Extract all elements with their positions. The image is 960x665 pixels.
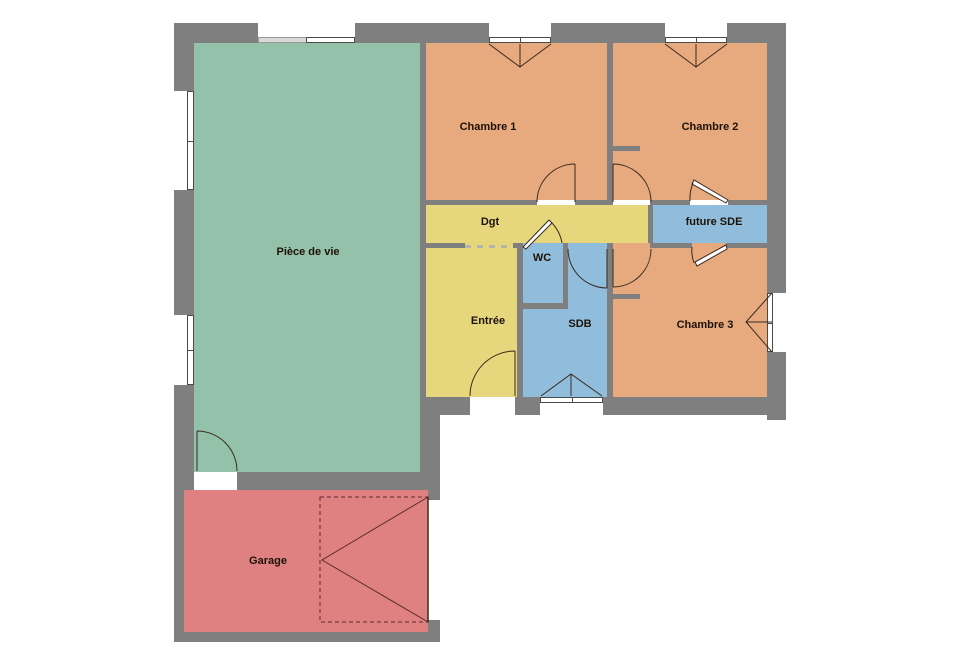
door-arc-sdb	[568, 249, 607, 288]
door-arc-entree	[470, 351, 515, 396]
label-wc: WC	[533, 252, 551, 264]
window-v-chambre1	[489, 44, 551, 67]
garage-door-diagonals	[322, 497, 428, 622]
window-v-sdb	[541, 374, 602, 396]
window-v-chambre3	[746, 293, 772, 352]
label-chambre-1: Chambre 1	[460, 121, 517, 133]
door-arc-chambre3	[613, 249, 651, 287]
door-arc-sde-bottom	[692, 247, 694, 263]
door-leaf-sde-bottom	[695, 245, 727, 266]
label-chambre-3: Chambre 3	[677, 319, 734, 331]
label-future-sde: future SDE	[686, 216, 743, 228]
label-sdb: SDB	[568, 318, 591, 330]
door-window-symbols	[0, 0, 960, 665]
floor-plan-canvas: Pièce de vie Chambre 1 Chambre 2 Chambre…	[0, 0, 960, 665]
window-v-chambre2	[665, 44, 727, 67]
label-piece-de-vie: Pièce de vie	[277, 246, 340, 258]
door-arc-wc	[551, 222, 562, 243]
door-leaf-sde-top	[692, 180, 728, 203]
door-arc-pdv-garage	[197, 431, 237, 471]
garage-door-dashed-frame	[320, 497, 428, 622]
label-chambre-2: Chambre 2	[682, 121, 739, 133]
door-leaf-wc	[523, 220, 552, 249]
door-arc-chambre1	[537, 164, 575, 202]
label-entree: Entrée	[471, 315, 505, 327]
door-arc-sde-top	[690, 183, 693, 201]
label-garage: Garage	[249, 555, 287, 567]
door-arc-chambre2	[613, 164, 651, 202]
label-dgt: Dgt	[481, 216, 499, 228]
